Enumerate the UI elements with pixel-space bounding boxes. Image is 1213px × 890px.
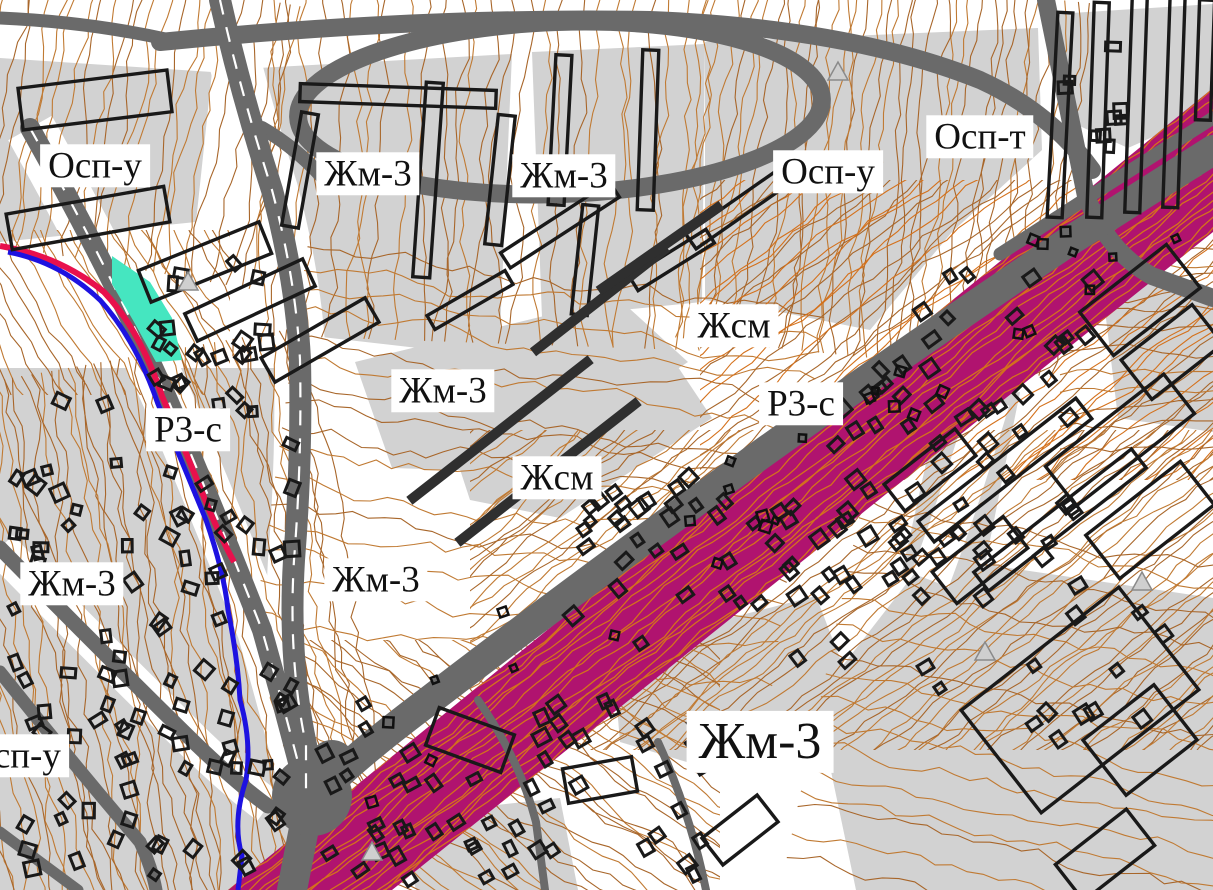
map-canvas[interactable] bbox=[0, 0, 1213, 890]
zoning-map: Осп-у Жм-3 Жм-3 Осп-у Осп-т Жсм Р3-с Р3-… bbox=[0, 0, 1213, 890]
